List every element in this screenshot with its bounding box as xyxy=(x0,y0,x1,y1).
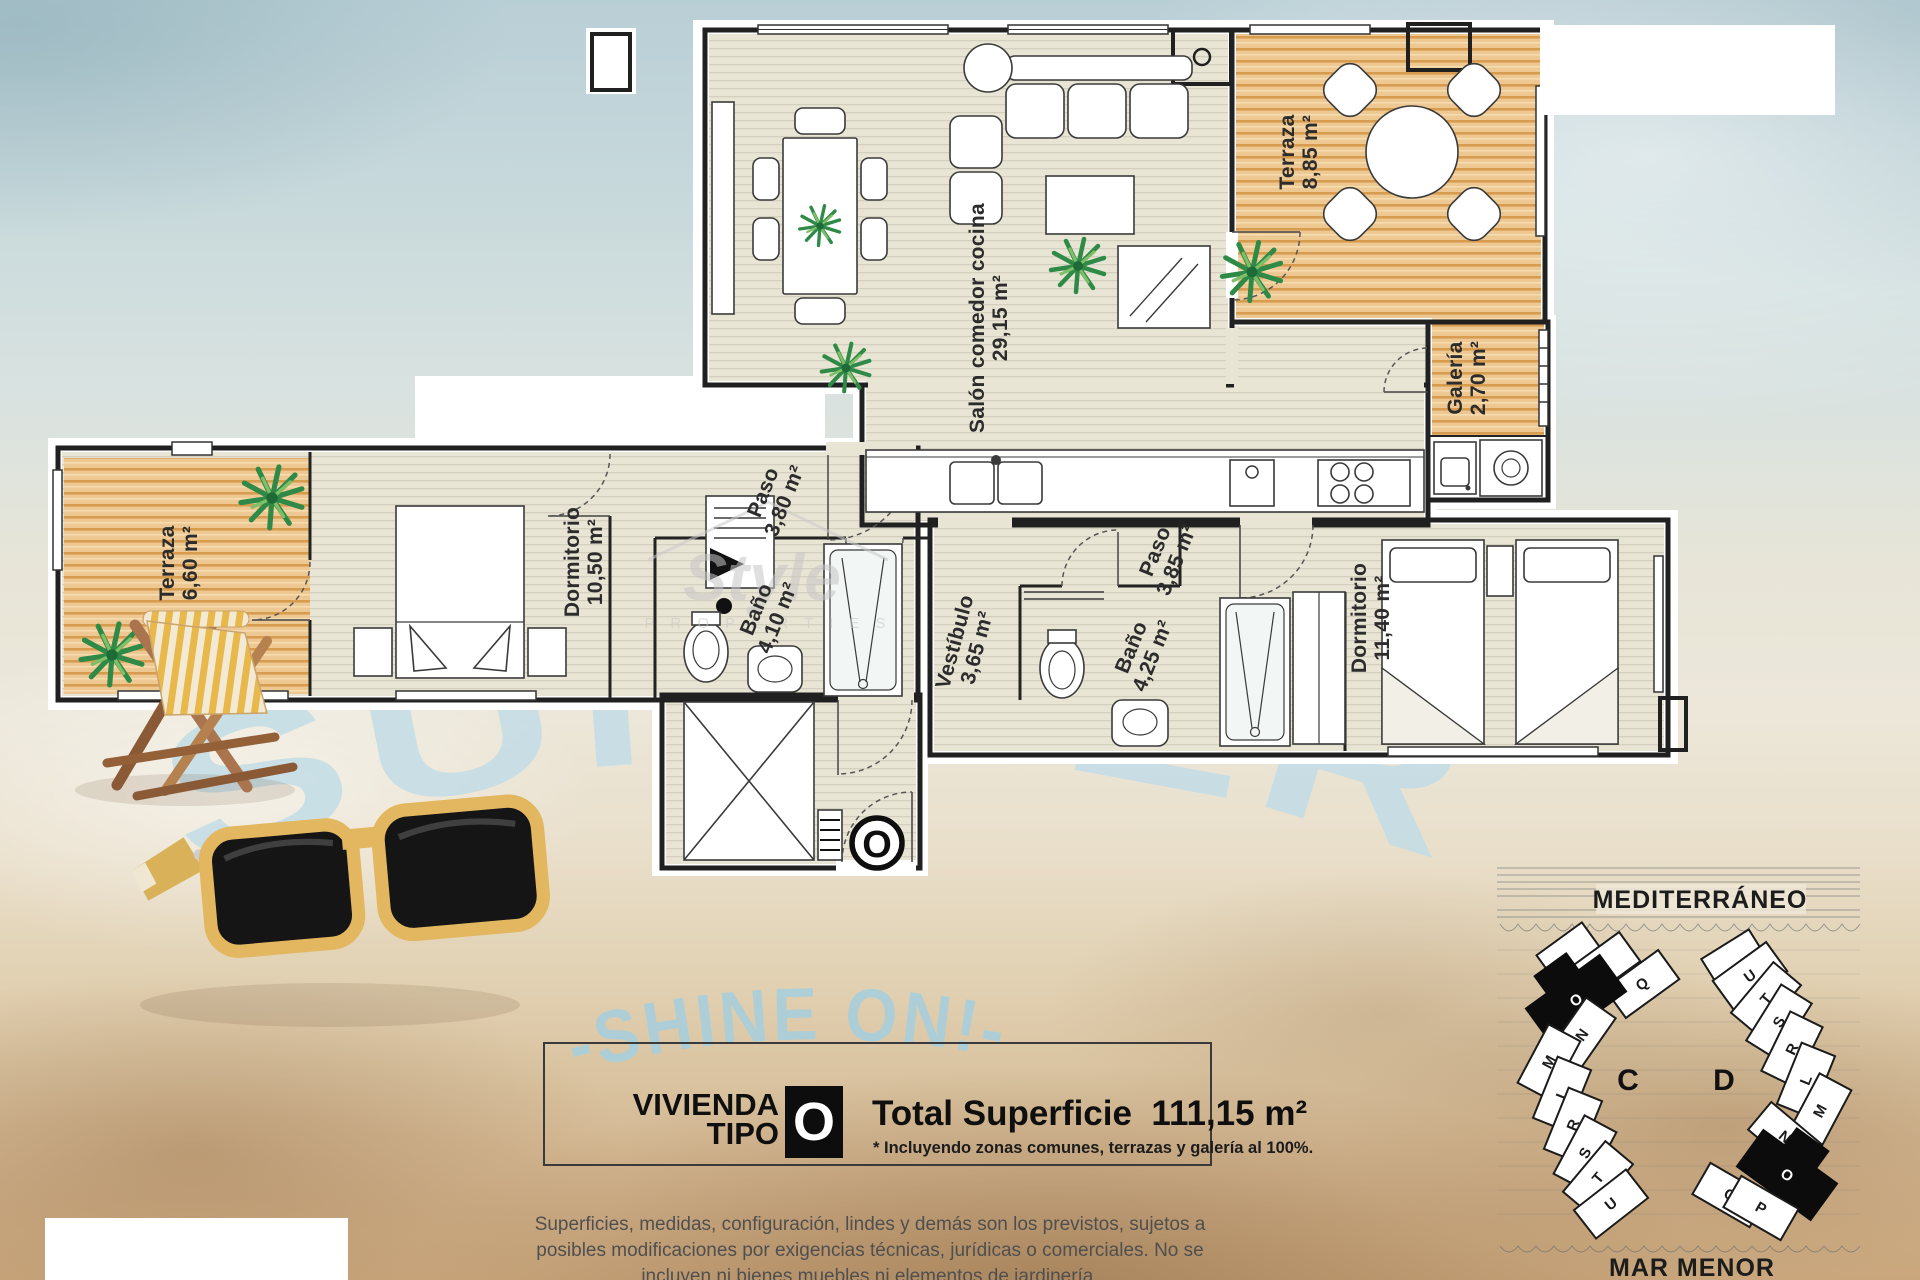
info-box: VIVIENDA TIPO O Total Superficie 111,15 … xyxy=(543,1042,1212,1166)
wave-line-top xyxy=(1500,924,1860,931)
label-terraza-main: Terraza8,85 m² xyxy=(1276,114,1322,189)
building-d-label: D xyxy=(1713,1064,1735,1097)
blank-cover-bottom-left xyxy=(45,1218,348,1280)
sea-band: MEDITERRÁNEO xyxy=(1497,868,1860,931)
building-c: P Q O N M L R S T U C xyxy=(1513,922,1679,1238)
vivienda-line: VIVIENDA xyxy=(605,1090,779,1119)
kitchen-counter xyxy=(866,450,1424,512)
label-terraza-left: Terraza6,60 m² xyxy=(156,525,202,600)
entrance-letter: O xyxy=(862,824,892,866)
tv-cabinet xyxy=(712,102,734,314)
footnote: * Incluyendo zonas comunes, terrazas y g… xyxy=(873,1139,1313,1158)
entrance-marker: O xyxy=(852,818,902,868)
total-superficie: Total Superficie 111,15 m² xyxy=(872,1094,1307,1134)
type-letter-badge: O xyxy=(785,1086,843,1158)
galeria-utility xyxy=(1434,440,1542,496)
blank-cover-top-right xyxy=(1540,25,1835,115)
label-dormitorio-1: Dormitorio10,50 m² xyxy=(561,507,607,617)
shore-label: MAR MENOR xyxy=(1609,1254,1775,1280)
total-value: 111,15 m² xyxy=(1151,1094,1307,1133)
building-d: U T S R L M N O Q P D xyxy=(1692,929,1851,1240)
duct-hatch xyxy=(818,810,842,860)
shore-band: MAR MENOR xyxy=(1500,1246,1860,1280)
label-dormitorio-2: Dormitorio11,40 m² xyxy=(1348,563,1394,673)
building-c-label: C xyxy=(1617,1064,1639,1097)
vivienda-tipo-label: VIVIENDA TIPO xyxy=(605,1090,779,1149)
site-plan: MEDITERRÁNEO P Q O N M L R S T U C xyxy=(1497,868,1860,1280)
flyer-page: SUMMER -SHINE ON!- xyxy=(0,0,1920,1280)
wave-line-bottom xyxy=(1500,1246,1860,1252)
tipo-line: TIPO xyxy=(605,1119,779,1148)
total-label: Total Superficie xyxy=(872,1094,1132,1133)
elevator xyxy=(684,702,814,860)
disclaimer-text: Superficies, medidas, configuración, lin… xyxy=(520,1212,1220,1280)
type-letter: O xyxy=(793,1091,835,1153)
sea-label: MEDITERRÁNEO xyxy=(1593,885,1808,914)
label-galeria: Galería2,70 m² xyxy=(1444,341,1490,415)
kitchen-island xyxy=(1118,246,1210,328)
